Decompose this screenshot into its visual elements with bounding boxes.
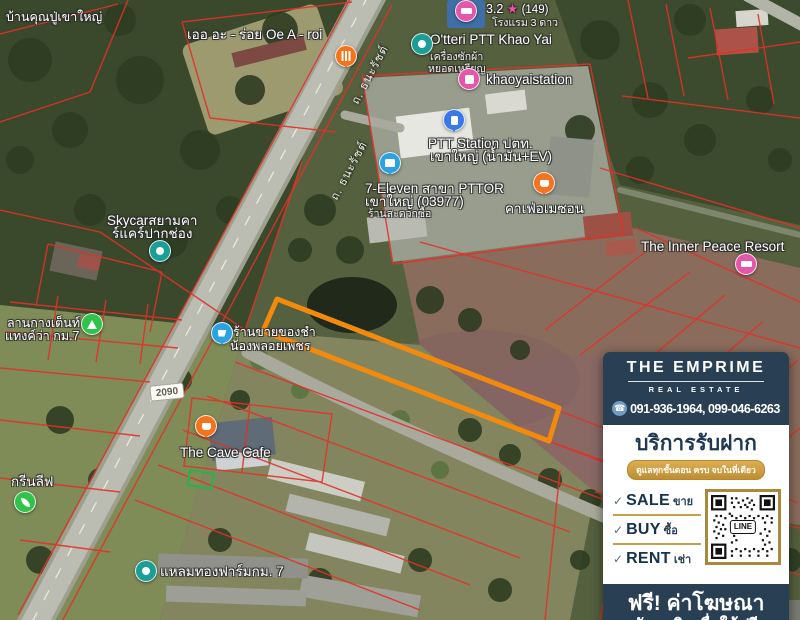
check-icon: ✓ bbox=[613, 494, 623, 508]
leaf-icon bbox=[21, 498, 30, 507]
farm-icon[interactable] bbox=[135, 560, 157, 582]
restaurant-icon[interactable] bbox=[335, 45, 357, 67]
star-icon: ★ bbox=[507, 2, 518, 16]
poi-label-skycar-line2: ร์แคร์ปากช่อง bbox=[112, 226, 192, 242]
poi-label-otteri-sub1: เครื่องซักผ้า bbox=[430, 51, 483, 63]
phone-numbers: 091-936-1964, 099-046-6263 bbox=[630, 402, 780, 416]
ad-header: THE EMPRIME REAL ESTATE ☎ 091-936-1964, … bbox=[603, 352, 789, 425]
poi-label-hotel-rating[interactable]: 3.2 ★ (149) bbox=[486, 2, 548, 17]
service-checklist: ✓ SALE ขาย ✓ BUY ซื้อ ✓ RENT เช่า bbox=[611, 489, 701, 572]
service-title: บริการรับฝาก bbox=[611, 433, 781, 455]
coffee-cup-icon bbox=[540, 180, 549, 187]
ad-footer: ฟรี! ค่าโฆษณา จัดหาสินเชื่อให้ฟรี bbox=[603, 584, 789, 620]
check-label-sale: SALE bbox=[626, 492, 670, 510]
hotel-icon[interactable] bbox=[455, 0, 477, 22]
check-icon: ✓ bbox=[613, 523, 623, 537]
poi-label-otteri[interactable]: O'tteri PTT Khao Yai bbox=[430, 32, 552, 48]
poi-label-laemthong-farm[interactable]: แหลมทองฟาร์มกม. 7 bbox=[160, 564, 284, 580]
coffee-cup-icon bbox=[202, 423, 211, 430]
fork-icon bbox=[345, 51, 347, 61]
poi-label-green-leaf[interactable]: กรีนลีฟ bbox=[11, 474, 53, 490]
tent-icon bbox=[87, 320, 97, 329]
washer-icon bbox=[465, 75, 474, 84]
check-row-rent: ✓ RENT เช่า bbox=[613, 547, 701, 572]
ad-body: บริการรับฝาก ดูแลทุกขั้นตอน ครบ จบในที่เ… bbox=[603, 425, 789, 584]
line-qr-code: LINE bbox=[705, 489, 781, 565]
check-label-buy-th: ซื้อ bbox=[664, 521, 678, 539]
check-row-sale: ✓ SALE ขาย bbox=[613, 489, 701, 516]
bed-icon bbox=[741, 261, 752, 267]
dot-icon bbox=[418, 40, 426, 48]
bed-icon bbox=[461, 8, 472, 14]
convenience-store-icon[interactable] bbox=[379, 152, 401, 174]
check-label-rent-th: เช่า bbox=[674, 550, 691, 568]
poi-label-tent-line2: แทงค์ว่า กม.7 bbox=[5, 329, 80, 343]
dot-icon bbox=[142, 567, 150, 575]
poi-label-khaoyaistation[interactable]: khaoyaistation bbox=[486, 72, 572, 88]
poi-label-grocery-line1[interactable]: ร้านขายของชำ bbox=[233, 325, 316, 339]
green-leaf-icon[interactable] bbox=[14, 491, 36, 513]
shopping-cart-icon bbox=[218, 330, 227, 337]
store-icon bbox=[385, 159, 395, 167]
phone-icon: ☎ bbox=[612, 401, 627, 416]
cave-cafe-icon[interactable] bbox=[195, 415, 217, 437]
laundry-station-icon[interactable] bbox=[458, 68, 480, 90]
review-count: (149) bbox=[522, 4, 549, 16]
real-estate-ad-panel: THE EMPRIME REAL ESTATE ☎ 091-936-1964, … bbox=[603, 352, 789, 620]
check-label-sale-th: ขาย bbox=[673, 492, 693, 510]
footer-line2: จัดหาสินเชื่อให้ฟรี bbox=[606, 616, 786, 620]
poi-label-inner-peace[interactable]: The Inner Peace Resort bbox=[641, 239, 784, 255]
poi-label-grandpa-house[interactable]: บ้านคุณปู่เขาใหญ่ bbox=[6, 10, 102, 24]
map-canvas[interactable]: ถ. ธนะรัชต์ ถ. ธนะรัชต์ 2090 บ้านคุณปู่เ… bbox=[0, 0, 800, 620]
poi-label-7eleven-line3: ร้านสะดวกซื้อ bbox=[368, 208, 431, 220]
footer-line1: ฟรี! ค่าโฆษณา bbox=[606, 592, 786, 616]
rating-value: 3.2 bbox=[486, 2, 503, 16]
poi-label-hotel-class: โรงแรม 3 ดาว bbox=[492, 17, 558, 29]
service-tagline-pill: ดูแลทุกขั้นตอน ครบ จบในที่เดียว bbox=[627, 460, 765, 480]
check-label-rent: RENT bbox=[626, 550, 671, 568]
check-icon: ✓ bbox=[613, 552, 623, 566]
dot-icon bbox=[156, 247, 164, 255]
poi-label-oe-a-roi[interactable]: เออ อะ - ร่อย Oe A - roi bbox=[187, 27, 322, 43]
line-badge: LINE bbox=[730, 520, 756, 534]
campsite-icon[interactable] bbox=[81, 313, 103, 335]
gas-station-icon[interactable] bbox=[443, 109, 465, 131]
poi-label-ptt-line2: เขาใหญ่ (น้ำมัน+EV) bbox=[430, 149, 552, 165]
poi-label-cave-cafe[interactable]: The Cave Cafe bbox=[180, 445, 271, 461]
car-care-icon[interactable] bbox=[149, 240, 171, 262]
phone-row: ☎ 091-936-1964, 099-046-6263 bbox=[607, 401, 785, 416]
brand-name: THE EMPRIME bbox=[607, 359, 785, 377]
teal-poi-icon[interactable] bbox=[411, 33, 433, 55]
grocery-shop-icon[interactable] bbox=[211, 322, 233, 344]
check-row-buy: ✓ BUY ซื้อ bbox=[613, 518, 701, 545]
check-label-buy: BUY bbox=[626, 521, 661, 539]
brand-divider bbox=[628, 381, 763, 382]
brand-subtitle: REAL ESTATE bbox=[607, 385, 785, 394]
poi-label-grocery-line2: น้องพลอยเพชร bbox=[230, 339, 311, 353]
poi-label-cafe-amazon[interactable]: คาเฟ่อเมซอน bbox=[505, 201, 584, 217]
cafe-amazon-icon[interactable] bbox=[533, 172, 555, 194]
resort-icon[interactable] bbox=[735, 253, 757, 275]
fuel-pump-icon bbox=[451, 116, 458, 125]
